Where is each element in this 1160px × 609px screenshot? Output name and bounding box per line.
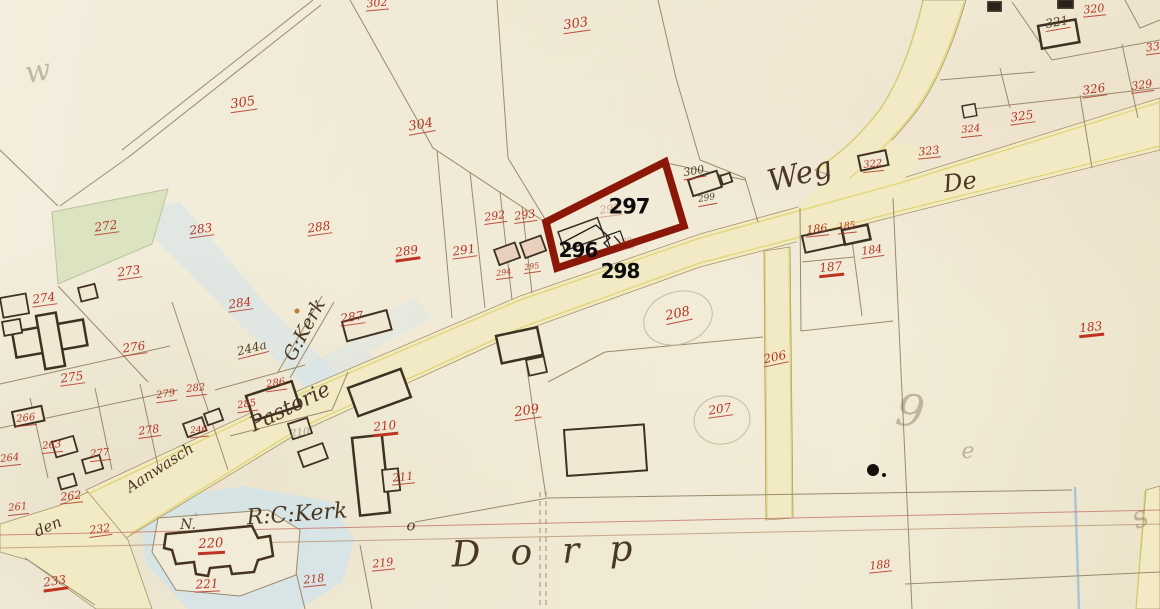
pencil-ovals xyxy=(637,282,754,448)
map-graphics xyxy=(0,0,1160,609)
cadastral-map: 3053043033023203213263293332532432332218… xyxy=(0,0,1160,609)
